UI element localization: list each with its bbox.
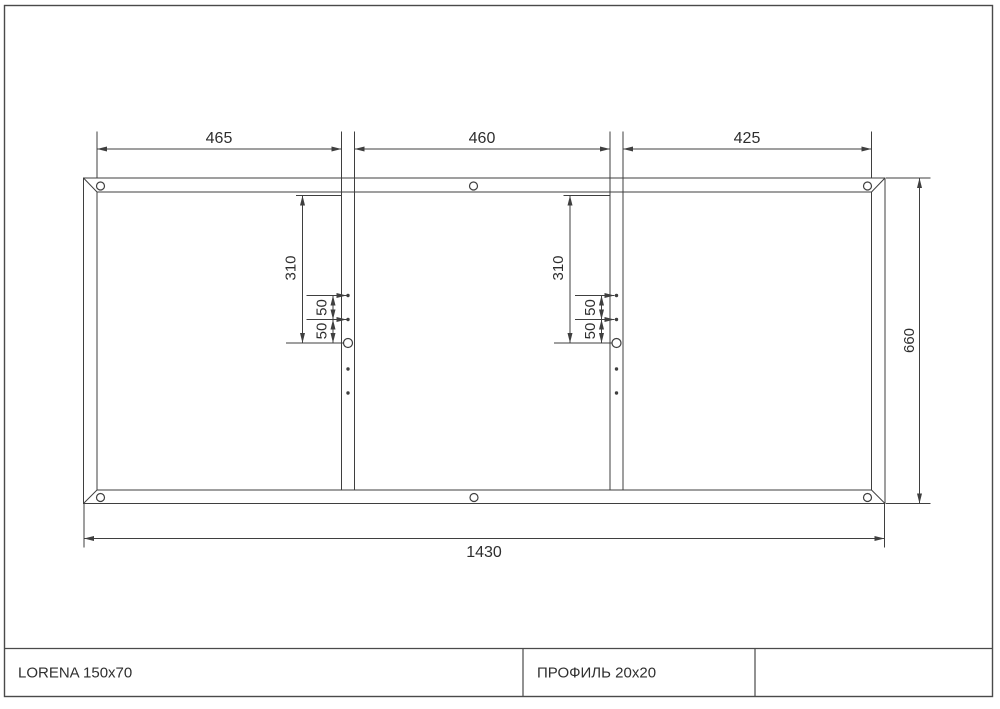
hole-top-left xyxy=(97,182,105,190)
dimension-label-460: 460 xyxy=(469,130,496,147)
sheet-border xyxy=(5,6,993,697)
crossbar-2 xyxy=(610,132,623,491)
dimension-label-50: 50 xyxy=(582,323,599,340)
hole-crossbar-2-small xyxy=(615,318,618,321)
crossbar-1 xyxy=(342,132,355,491)
hole-crossbar-2-main xyxy=(612,339,621,348)
hole-crossbar-1-main xyxy=(344,339,353,348)
dimension-overall-width: 1430 xyxy=(84,504,885,561)
dimension-label-465: 465 xyxy=(206,130,233,147)
dimension-label-310: 310 xyxy=(550,255,567,280)
hole-bottom-right xyxy=(864,494,872,502)
hole-crossbar-1-small xyxy=(346,318,349,321)
frame-outer-rect xyxy=(84,178,886,504)
hole-bottom-left xyxy=(97,494,105,502)
title-block: LORENA 150x70 ПРОФИЛЬ 20x20 xyxy=(5,649,993,697)
dimension-top-segments: 465 460 425 xyxy=(97,130,872,178)
hole-crossbar-1-small xyxy=(346,391,349,394)
miter-top-left xyxy=(84,178,98,192)
hole-crossbar-2-small xyxy=(615,367,618,370)
title-block-product-name: LORENA 150x70 xyxy=(18,665,132,682)
sheet-border-rect xyxy=(5,6,993,697)
miter-bottom-left xyxy=(84,490,98,504)
technical-drawing: LORENA 150x70 ПРОФИЛЬ 20x20 xyxy=(0,0,1000,709)
hole-bottom-center xyxy=(470,494,478,502)
drawing-sheet: LORENA 150x70 ПРОФИЛЬ 20x20 xyxy=(0,0,1000,709)
dimension-label-310: 310 xyxy=(283,255,300,280)
hole-top-right xyxy=(864,182,872,190)
hole-dimensions-left: 310 50 50 xyxy=(283,196,347,344)
miter-top-right xyxy=(872,178,886,192)
frame-outline xyxy=(84,178,886,504)
dimension-label-1430: 1430 xyxy=(466,544,502,561)
mounting-holes xyxy=(97,182,872,502)
dimension-label-50: 50 xyxy=(314,299,331,316)
dimension-overall-height: 660 xyxy=(886,178,931,504)
dimension-label-660: 660 xyxy=(901,328,918,353)
hole-top-center xyxy=(470,182,478,190)
miter-bottom-right xyxy=(872,490,886,504)
dimension-label-50: 50 xyxy=(314,323,331,340)
hole-crossbar-2-small xyxy=(615,391,618,394)
title-block-profile-spec: ПРОФИЛЬ 20x20 xyxy=(537,665,656,682)
hole-dimensions-right: 310 50 50 xyxy=(550,196,615,344)
hole-crossbar-1-small xyxy=(346,294,349,297)
hole-crossbar-2-small xyxy=(615,294,618,297)
dimension-label-50: 50 xyxy=(582,299,599,316)
hole-crossbar-1-small xyxy=(346,367,349,370)
dimension-label-425: 425 xyxy=(734,130,761,147)
